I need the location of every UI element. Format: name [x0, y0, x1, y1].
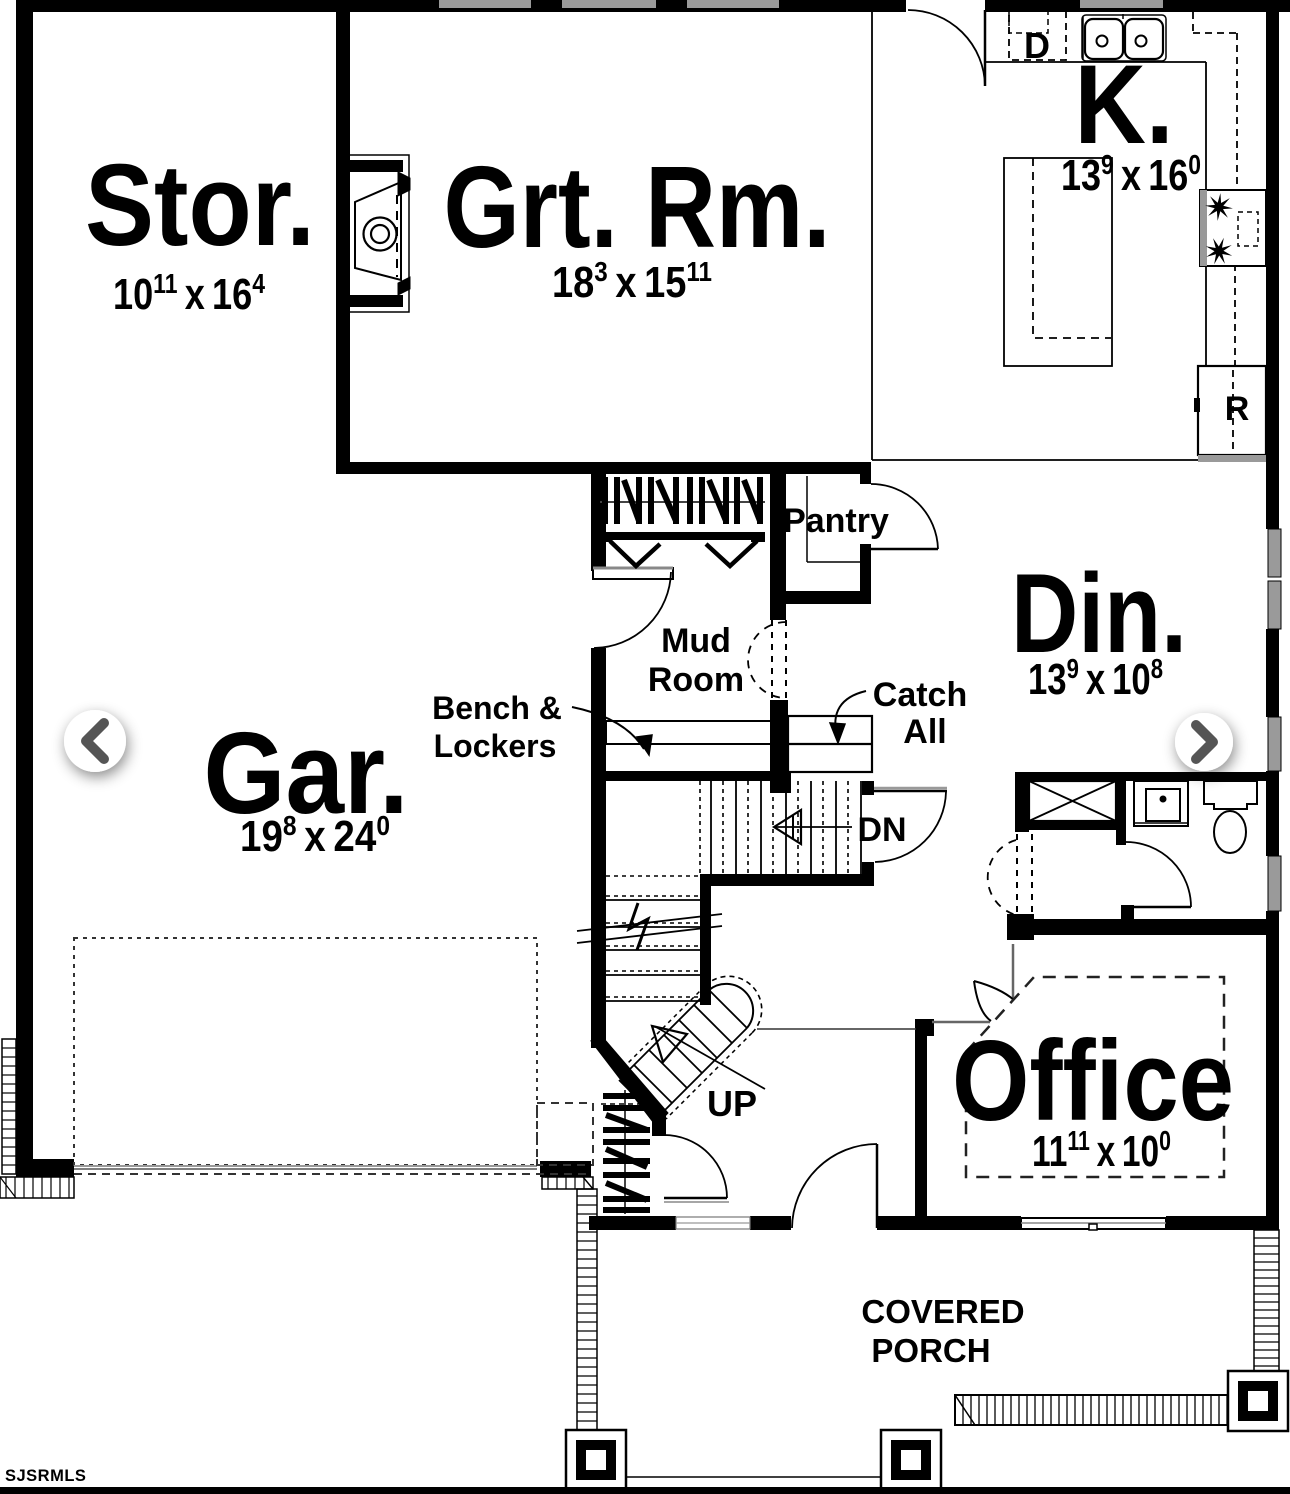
svg-text:Catch: Catch: [873, 676, 967, 714]
svg-text:K.: K.: [1075, 42, 1174, 167]
svg-text:Pantry: Pantry: [783, 502, 889, 540]
svg-text:Room: Room: [648, 661, 744, 699]
svg-text:Lockers: Lockers: [434, 728, 557, 764]
svg-text:139 x 108: 139 x 108: [1028, 653, 1163, 704]
svg-text:COVERED: COVERED: [861, 1293, 1024, 1330]
svg-text:Bench &: Bench &: [432, 690, 562, 726]
svg-text:1111 x 100: 1111 x 100: [1032, 1125, 1171, 1176]
svg-text:Stor.: Stor.: [85, 140, 315, 270]
svg-text:Mud: Mud: [661, 622, 731, 660]
svg-text:1011 x 164: 1011 x 164: [113, 268, 265, 319]
svg-text:198 x 240: 198 x 240: [240, 810, 390, 861]
svg-text:UP: UP: [707, 1083, 757, 1124]
svg-text:DN: DN: [857, 811, 906, 849]
svg-text:D: D: [1024, 25, 1050, 66]
svg-text:PORCH: PORCH: [871, 1332, 990, 1369]
svg-text:139 x 160: 139 x 160: [1061, 149, 1201, 200]
svg-text:All: All: [903, 713, 946, 751]
svg-text:Office: Office: [952, 1018, 1234, 1145]
svg-text:SJSRMLS: SJSRMLS: [5, 1467, 86, 1485]
svg-text:R: R: [1225, 390, 1250, 428]
svg-text:Grt. Rm.: Grt. Rm.: [444, 142, 831, 272]
